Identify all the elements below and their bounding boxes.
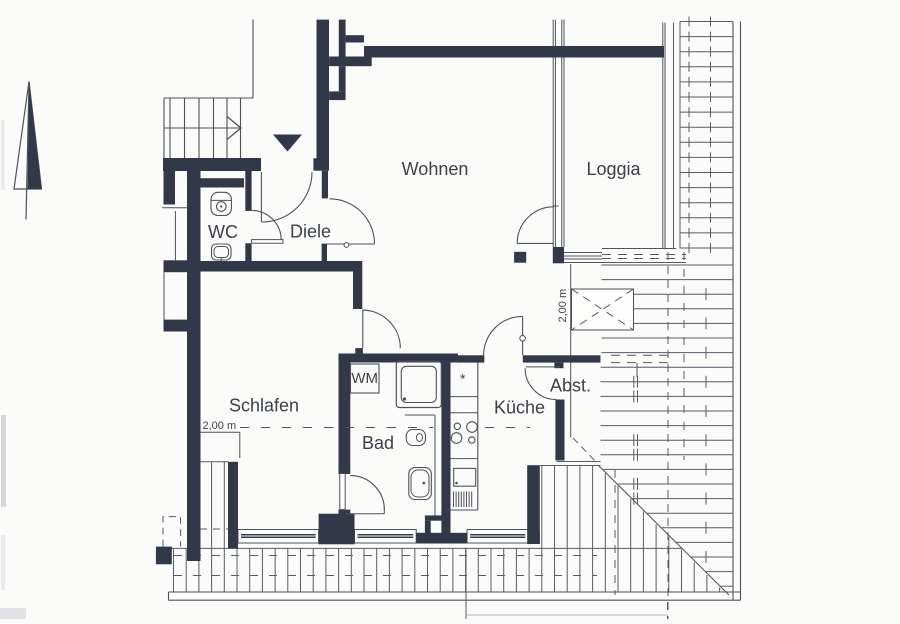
- svg-text:*: *: [460, 371, 466, 387]
- svg-text:Küche: Küche: [494, 398, 545, 418]
- svg-text:2,00 m: 2,00 m: [203, 420, 237, 432]
- svg-text:WC: WC: [208, 222, 238, 242]
- svg-text:Loggia: Loggia: [586, 159, 641, 179]
- svg-text:Diele: Diele: [290, 222, 331, 242]
- svg-text:2,00 m: 2,00 m: [557, 289, 569, 323]
- svg-text:Wohnen: Wohnen: [402, 159, 469, 179]
- svg-text:Bad: Bad: [362, 433, 394, 453]
- svg-text:Schlafen: Schlafen: [229, 396, 299, 416]
- svg-text:Abst.: Abst.: [550, 376, 591, 396]
- svg-text:WM: WM: [351, 370, 378, 387]
